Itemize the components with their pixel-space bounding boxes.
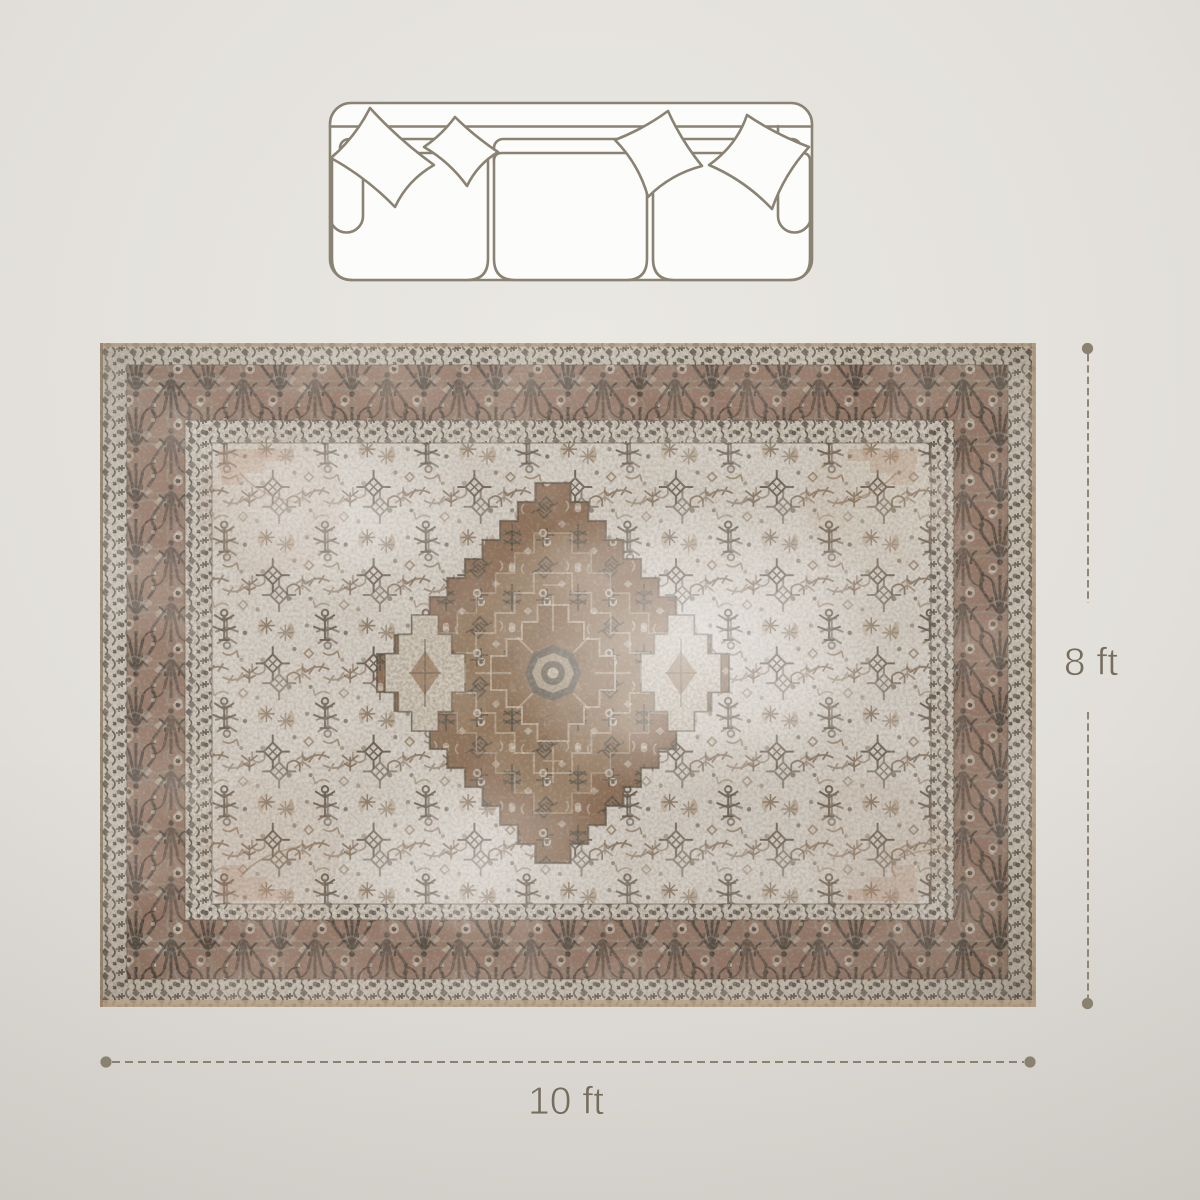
svg-text:8 ft: 8 ft [1064, 641, 1118, 684]
svg-text:10 ft: 10 ft [528, 1080, 604, 1123]
